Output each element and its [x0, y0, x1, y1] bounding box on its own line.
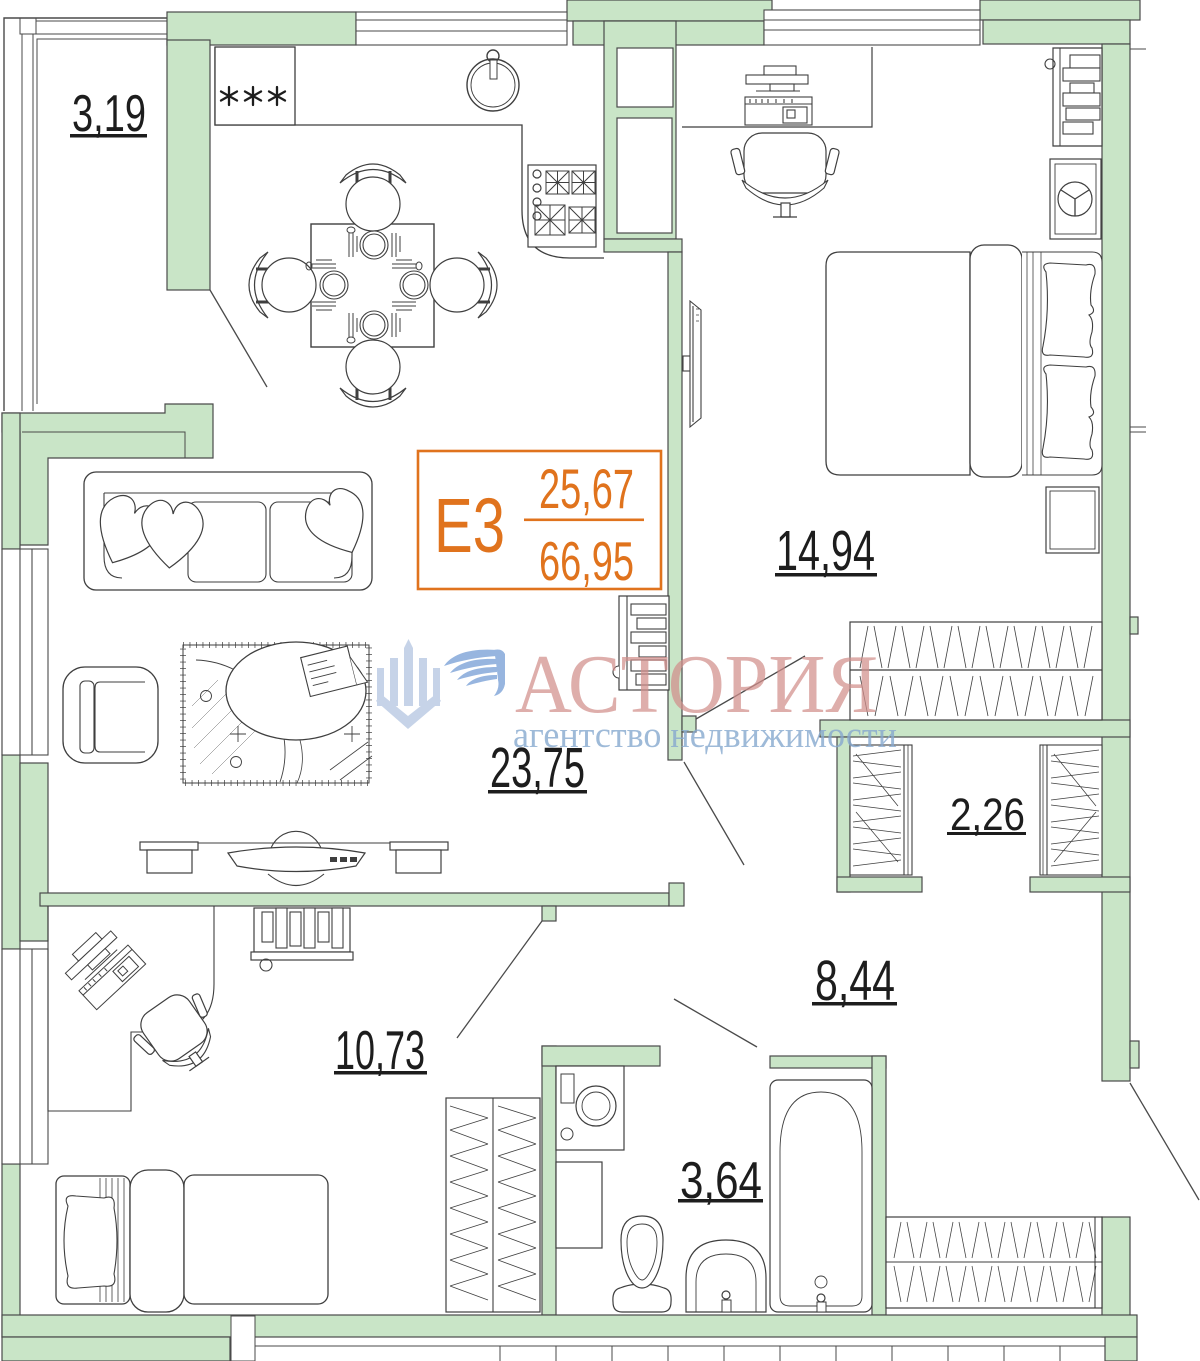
- svg-text:66,95: 66,95: [539, 530, 634, 592]
- svg-text:25,67: 25,67: [539, 457, 634, 520]
- svg-text:агентство недвижимости: агентство недвижимости: [513, 715, 897, 756]
- svg-text:Е3: Е3: [434, 483, 505, 569]
